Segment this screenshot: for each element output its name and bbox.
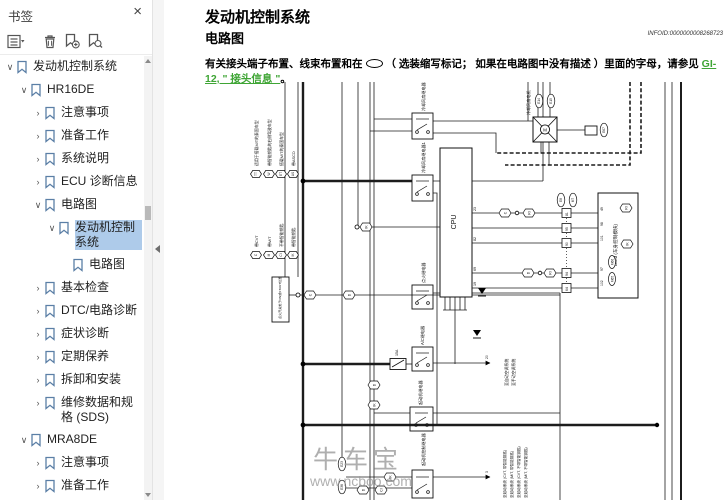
close-panel-icon[interactable]: × (133, 3, 142, 21)
svg-text:98: 98 (600, 222, 604, 226)
bookmark-icon (44, 151, 56, 166)
svg-text:RI: RI (624, 206, 628, 209)
scroll-down-icon[interactable] (145, 493, 151, 497)
bookmark-icon (44, 326, 56, 341)
svg-text:95: 95 (565, 227, 569, 231)
para-text: 有关接头端子布置、线束布置和在 (205, 58, 363, 70)
bookmarks-title: 书签 (8, 6, 33, 25)
bookmark-item[interactable]: ›症状诊断 (0, 323, 144, 346)
svg-text:23: 23 (473, 207, 477, 211)
bookmark-item[interactable]: ∨发动机控制系统 (0, 56, 144, 79)
bookmarks-tree: ∨发动机控制系统 ∨HR16DE ›注意事项 ›准备工作 ›系统说明 ›ECU … (0, 56, 144, 500)
svg-text:至起动系统 (CVT, 不带智能钥匙): 至起动系统 (CVT, 不带智能钥匙) (516, 446, 521, 498)
bookmarks-panel: 书签 × ∨发动机控制系统 ∨HR16DE ›注意事项 ›准备工作 ›系统说明 … (0, 0, 152, 500)
bookmark-icon (44, 105, 56, 120)
bookmark-icon (44, 372, 56, 387)
bookmark-label: DTC/电路诊断 (61, 303, 142, 318)
bookmark-label: 系统说明 (61, 151, 142, 166)
svg-text:64: 64 (565, 287, 569, 291)
bookmark-item-selected[interactable]: ∨发动机控制系统 (0, 217, 144, 254)
svg-text:TT: TT (254, 172, 258, 176)
bookmark-label: 电路图 (89, 257, 142, 272)
bookmark-label: 发动机控制系统 (33, 59, 142, 74)
svg-text:82: 82 (473, 237, 477, 241)
chevron-right-icon[interactable]: › (32, 478, 44, 494)
cpu-label: CPU (451, 215, 458, 230)
svg-text:带智能钥匙: 带智能钥匙 (291, 227, 296, 247)
watermark: 牛车宝 www.ncboo.com (309, 446, 412, 489)
bookmark-label: MRA8DE (47, 432, 142, 447)
svg-text:3: 3 (485, 471, 489, 473)
component-labels: 冷却风扇继电器2 冷却风扇继电器1 点火继电器 A/C继电器 起动机继电器 起动… (417, 82, 531, 466)
svg-text:E15: E15 (549, 98, 553, 104)
watermark-url: www.ncboo.com (309, 473, 412, 489)
svg-text:带ASCD: 带ASCD (291, 151, 296, 166)
connector-info-link[interactable]: GI- (702, 58, 717, 70)
svg-text:19: 19 (473, 282, 477, 286)
bookmark-icon (44, 455, 56, 470)
svg-text:至起动系统 (CVT, 带智能钥匙): 至起动系统 (CVT, 带智能钥匙) (502, 450, 507, 498)
scroll-up-icon[interactable] (145, 59, 151, 63)
bookmark-label: 基本检查 (61, 280, 142, 295)
chevron-right-icon[interactable]: › (32, 326, 44, 342)
chevron-right-icon[interactable]: › (32, 349, 44, 365)
svg-text:A/C继电器: A/C继电器 (419, 326, 425, 345)
svg-text:94: 94 (565, 272, 569, 276)
bookmark-label: 发动机控制系统 (75, 220, 142, 250)
svg-text:M: M (267, 253, 271, 256)
motor-symbol: M (543, 127, 547, 132)
bookmark-icon (44, 395, 56, 410)
svg-text:20: 20 (485, 355, 489, 359)
bookmark-icon (16, 59, 28, 74)
section-heading: 电路图 (205, 28, 244, 47)
svg-text:W: W (267, 172, 271, 175)
sidebar-scrollbar[interactable] (144, 56, 152, 500)
collapse-panel-icon[interactable] (155, 245, 160, 253)
svg-text:90: 90 (565, 242, 569, 246)
chevron-right-icon[interactable]: › (32, 128, 44, 144)
para-text: （ 选装缩写标记； 如果在电路图中没有描述 ）里面的字母，请参见 (386, 58, 702, 70)
legend-bottom: C 带CVT M 带M/T CI 不带智能钥匙 IK 带智能钥匙 (251, 224, 299, 259)
bookmark-icon (44, 280, 56, 295)
cpu-box: CPU (440, 148, 472, 297)
bookmark-label: 注意事项 (61, 455, 142, 470)
svg-text:带M/T: 带M/T (267, 236, 272, 247)
chevron-down-icon[interactable]: ∨ (4, 59, 16, 75)
svg-text:69: 69 (473, 267, 477, 271)
bookmark-icon (44, 303, 56, 318)
svg-text:不带智能钥匙: 不带智能钥匙 (279, 224, 284, 247)
delete-bookmark-icon[interactable] (40, 31, 60, 51)
bookmark-icon (30, 82, 42, 97)
svg-text:49: 49 (600, 207, 604, 211)
chevron-right-icon[interactable]: › (32, 280, 44, 296)
svg-text:冷却风扇电机: 冷却风扇电机 (525, 90, 531, 115)
svg-text:起动机继电器: 起动机继电器 (417, 380, 423, 405)
legend-top: TT 适用于搭载M/T的泰国车型 W 带智能钥匙的右侧驾驶车型 ET 搭载M/T… (251, 119, 299, 177)
chevron-down-icon[interactable]: ∨ (18, 432, 30, 448)
bookmark-icon (30, 432, 42, 447)
svg-text:E67: E67 (602, 127, 606, 133)
option-oval-symbol (366, 59, 383, 68)
svg-text:97: 97 (600, 267, 604, 271)
svg-text:冷却风扇继电器1: 冷却风扇继电器1 (420, 141, 426, 173)
bookmark-icon (44, 349, 56, 364)
chevron-right-icon[interactable]: › (32, 303, 44, 319)
svg-text:RI: RI (527, 211, 531, 214)
connector-ref: M65 (610, 276, 614, 282)
chevron-right-icon[interactable]: › (32, 174, 44, 190)
svg-text:至起动系统 (M/T, 不带智能钥匙): 至起动系统 (M/T, 不带智能钥匙) (523, 447, 528, 498)
bookmark-item[interactable]: ›拆卸和安装 (0, 369, 144, 392)
svg-text:CI: CI (279, 253, 283, 256)
bookmark-item[interactable]: ›系统说明 (0, 148, 144, 171)
bookmark-icon (58, 220, 70, 235)
bookmarks-header: 书签 × (0, 0, 152, 26)
add-bookmark-icon[interactable] (62, 31, 82, 51)
bookmark-icon (72, 257, 84, 272)
bookmark-item[interactable]: ›维修数据和规格 (SDS) (0, 392, 144, 429)
bookmark-icon (44, 128, 56, 143)
fuse-label: 15A (395, 349, 399, 356)
cpu-terminal-numbers: 23 82 69 19 (473, 207, 477, 286)
svg-text:AS: AS (291, 172, 295, 176)
bookmark-item[interactable]: ›定期保养 (0, 346, 144, 369)
connector-ovals: E14 E15 E67 E8 M7 E23 E38 (338, 94, 608, 494)
chevron-right-icon[interactable]: › (32, 455, 44, 471)
bookmark-item[interactable]: ∨MRA8DE (0, 429, 144, 452)
bookmark-item[interactable]: ›ECU 诊断信息 (0, 171, 144, 194)
svg-text:M7: M7 (571, 198, 575, 203)
svg-text:RI: RI (548, 271, 552, 274)
cooling-fan-motor: M (533, 117, 557, 142)
ignition-switch-box: 点火开关处于ON或START位置 (272, 277, 289, 322)
bookmark-icon (44, 197, 56, 212)
fuse: 15A (390, 349, 406, 369)
bookmark-label: 注意事项 (61, 105, 142, 120)
svg-text:带CVT: 带CVT (254, 235, 259, 247)
svg-text:101: 101 (600, 235, 604, 241)
arrow-labels: 20 至自动空调系统 至手动空调系统 3 至起动系统 (CVT, 带智能钥匙) … (485, 355, 528, 498)
chevron-down-icon[interactable]: ∨ (46, 220, 58, 236)
chevron-right-icon[interactable]: › (32, 151, 44, 167)
bookmark-label: 拆卸和安装 (61, 372, 142, 387)
bookmark-icon (44, 478, 56, 493)
bookmark-label: 电路图 (61, 197, 142, 212)
watermark-brand: 牛车宝 (313, 446, 403, 474)
svg-text:起动机控制继电器: 起动机控制继电器 (420, 433, 426, 466)
ignition-switch-label: 点火开关处于ON或START位置 (277, 277, 282, 319)
svg-text:适用于搭载M/T的泰国车型: 适用于搭载M/T的泰国车型 (254, 120, 259, 166)
document-page: 发动机控制系统 电路图 INFOID:0000000008268723 有关接头… (164, 0, 727, 500)
bookmark-label: 症状诊断 (61, 326, 142, 341)
chevron-right-icon[interactable]: › (32, 372, 44, 388)
svg-text:冷却风扇继电器2: 冷却风扇继电器2 (420, 82, 426, 111)
bookmark-label: HR16DE (47, 82, 142, 97)
bookmark-item[interactable]: ›准备工作 (0, 125, 144, 148)
bookmark-item[interactable]: ∨HR16DE (0, 79, 144, 102)
page-title: 发动机控制系统 (205, 6, 310, 27)
wiring-diagram: CPU M 15A BCM (车身控制模块) (190, 82, 727, 500)
svg-text:至起动系统 (M/T, 带智能钥匙): 至起动系统 (M/T, 带智能钥匙) (509, 451, 514, 498)
bookmark-label: 维修数据和规格 (SDS) (61, 395, 142, 425)
bookmark-item[interactable]: ›准备工作 (0, 475, 144, 498)
svg-text:点火继电器: 点火继电器 (420, 263, 426, 283)
bookmark-item[interactable]: ›注意事项 (0, 452, 144, 475)
e67-box (585, 126, 597, 135)
connector-ref: M66 (610, 259, 614, 265)
svg-text:ET: ET (279, 172, 283, 176)
bookmark-label: 准备工作 (61, 478, 142, 493)
chevron-right-icon[interactable]: › (32, 105, 44, 121)
chevron-down-icon[interactable]: ∨ (32, 197, 44, 213)
chevron-right-icon[interactable]: › (32, 395, 44, 411)
svg-text:搭载M/T的泰国车型: 搭载M/T的泰国车型 (279, 132, 284, 166)
bookmark-item[interactable]: ›电路图 (0, 254, 144, 277)
bookmark-label: ECU 诊断信息 (61, 174, 142, 189)
svg-text:81: 81 (565, 212, 569, 216)
chevron-down-icon[interactable]: ∨ (18, 82, 30, 98)
bookmarks-toolbar (0, 28, 152, 55)
svg-text:至自动空调系统: 至自动空调系统 (504, 359, 509, 386)
bookmark-label: 定期保养 (61, 349, 142, 364)
infoid-label: INFOID:0000000008268723 (648, 31, 723, 37)
scrollbar-thumb[interactable] (145, 206, 151, 220)
bookmark-label: 准备工作 (61, 128, 142, 143)
bookmark-icon (44, 174, 56, 189)
bookmark-item[interactable]: ›注意事项 (0, 102, 144, 125)
svg-text:至手动空调系统: 至手动空调系统 (511, 359, 516, 386)
bookmark-item[interactable]: ∨电路图 (0, 194, 144, 217)
bookmark-item[interactable]: ›DTC/电路诊断 (0, 300, 144, 323)
svg-text:E14: E14 (537, 98, 541, 104)
pdf-reader-window: 书签 × ∨发动机控制系统 ∨HR16DE ›注意事项 ›准备工作 ›系统说明 … (0, 0, 727, 500)
svg-text:102: 102 (600, 280, 604, 286)
bookmark-options-icon[interactable] (6, 31, 26, 51)
svg-text:E8: E8 (559, 198, 563, 202)
bookmark-item[interactable]: ›基本检查 (0, 277, 144, 300)
find-bookmark-icon[interactable] (85, 31, 105, 51)
svg-text:带智能钥匙的右侧驾驶车型: 带智能钥匙的右侧驾驶车型 (267, 119, 272, 166)
